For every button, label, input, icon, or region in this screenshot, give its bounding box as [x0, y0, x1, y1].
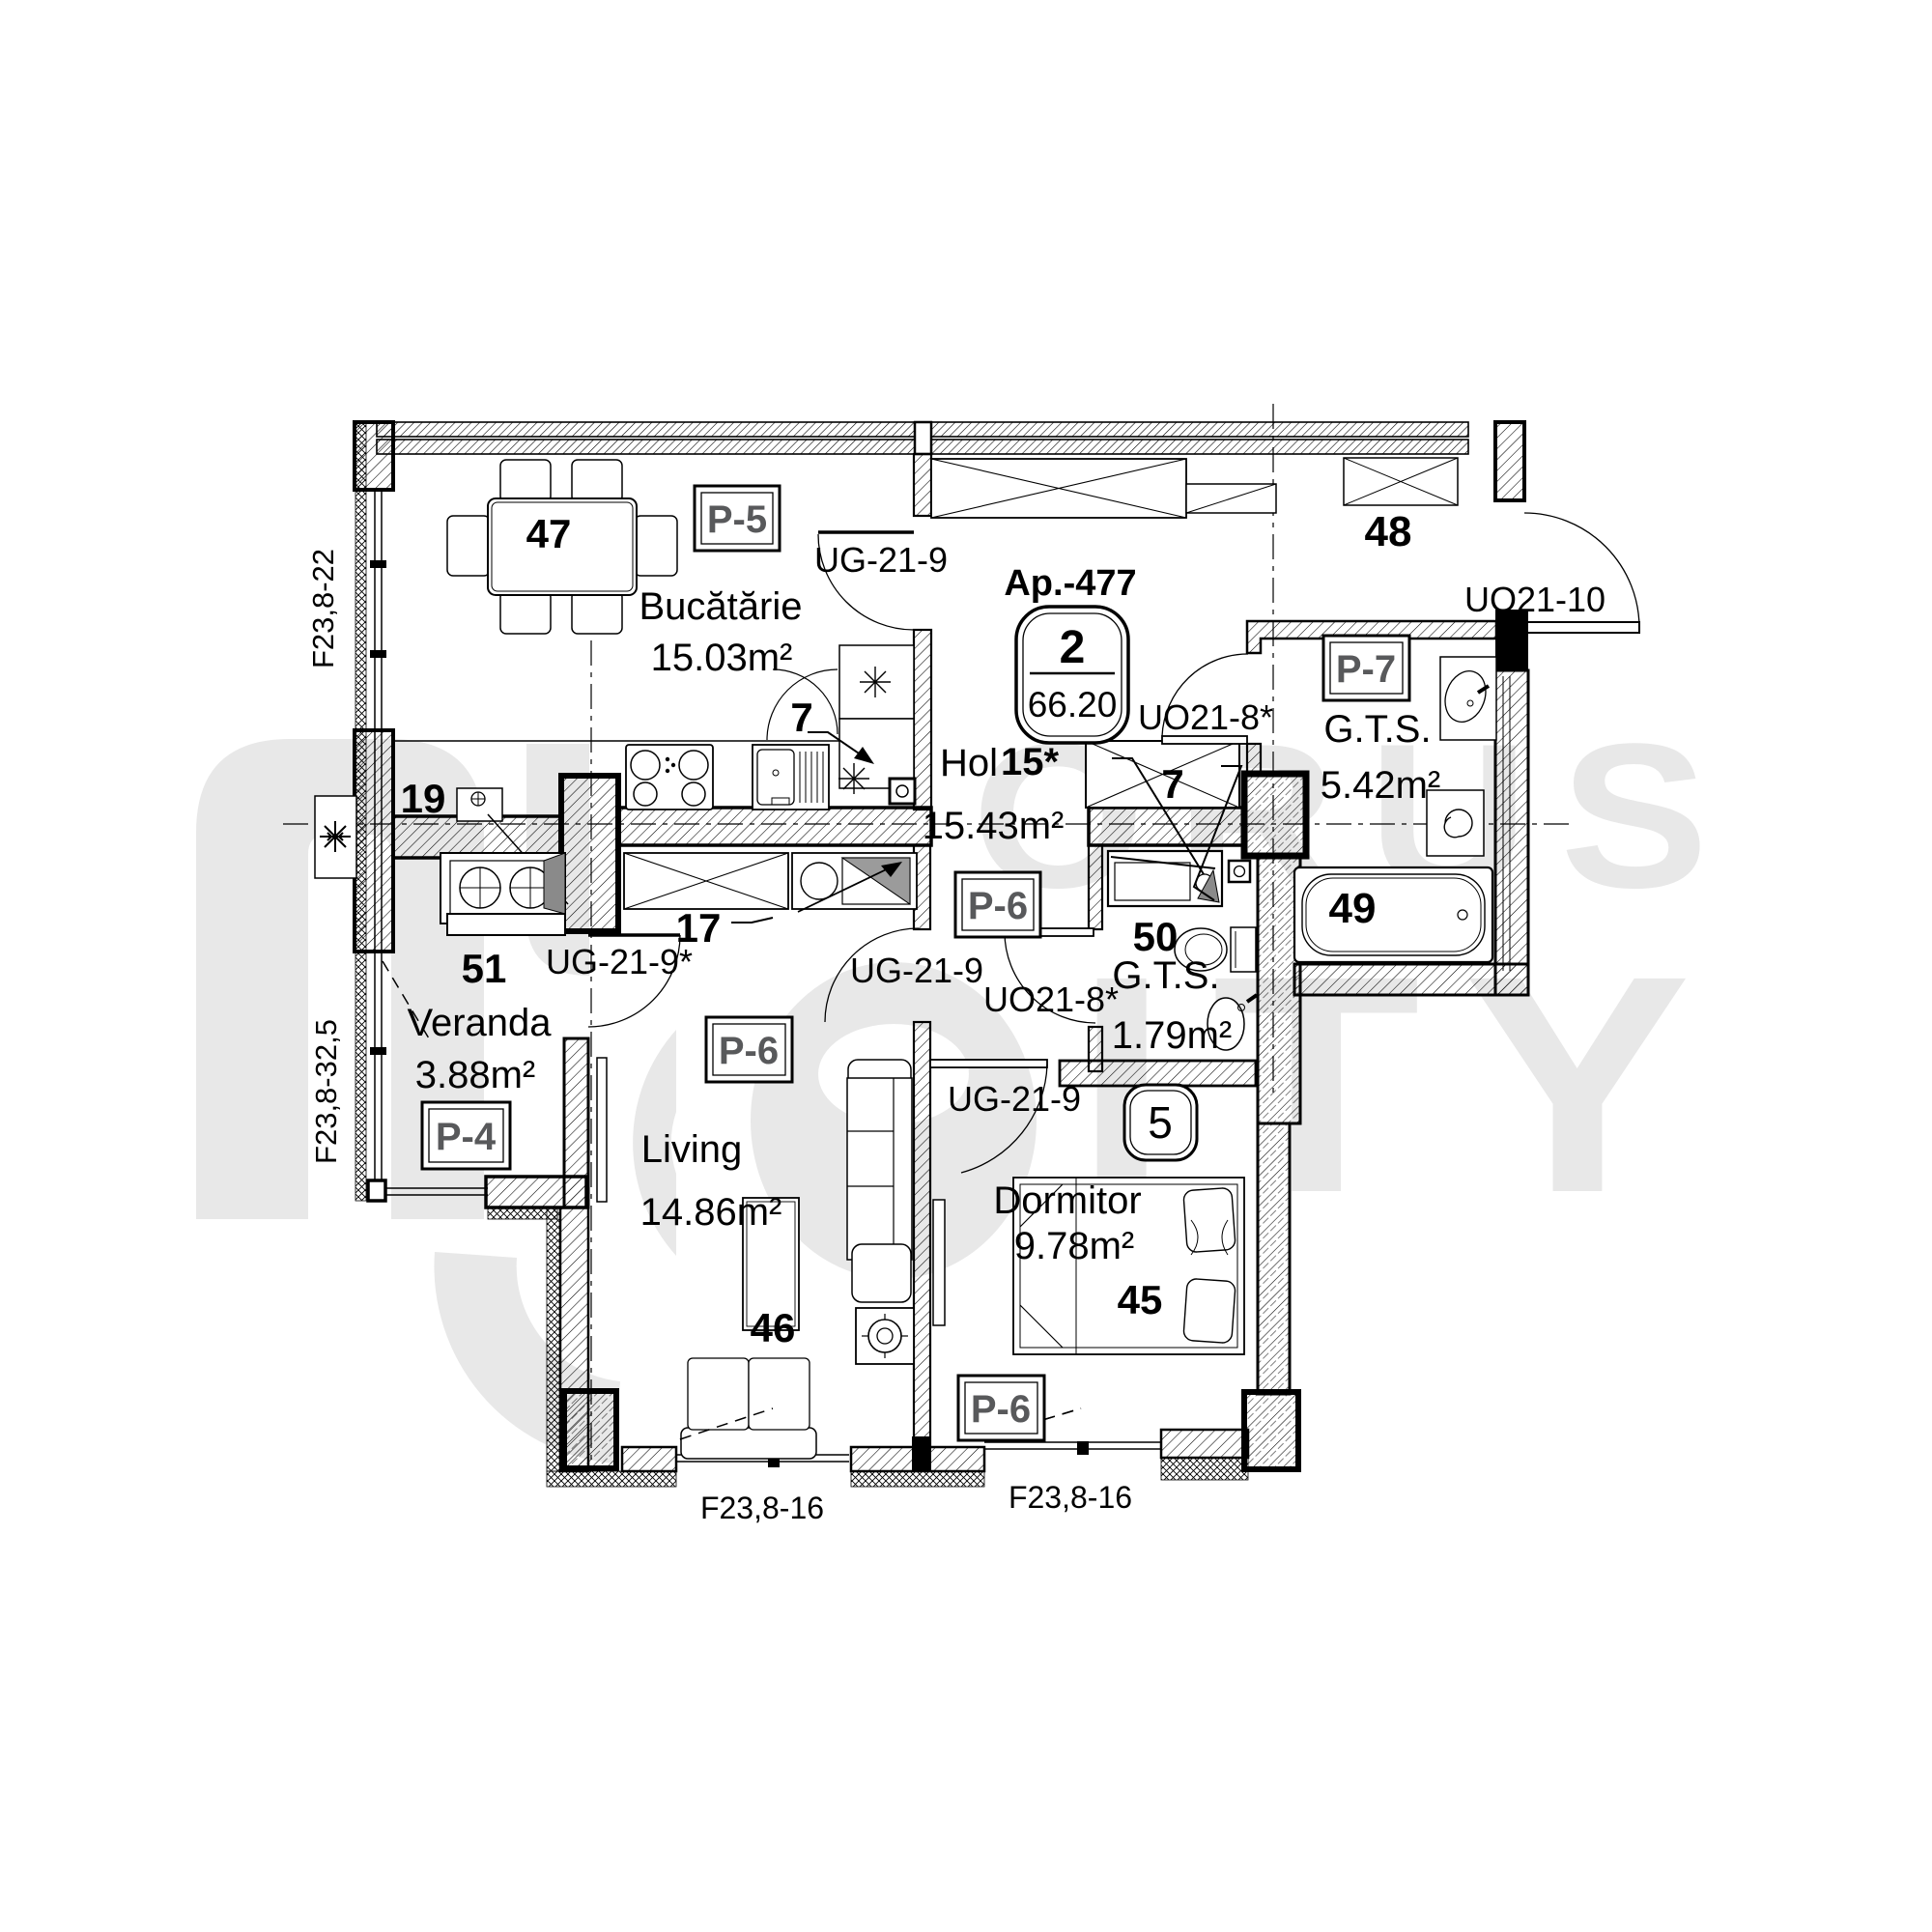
svg-text:48: 48	[1365, 508, 1412, 555]
svg-text:UO21-8*: UO21-8*	[983, 980, 1119, 1019]
svg-text:F23,8-22: F23,8-22	[306, 549, 340, 668]
svg-text:47: 47	[526, 511, 572, 556]
svg-text:P-6: P-6	[971, 1388, 1031, 1431]
svg-text:15.03m²: 15.03m²	[651, 637, 793, 679]
svg-text:F23,8-32,5: F23,8-32,5	[309, 1019, 343, 1164]
svg-text:5: 5	[1148, 1097, 1173, 1148]
svg-text:P-7: P-7	[1336, 648, 1396, 691]
svg-text:Dormitor: Dormitor	[993, 1179, 1141, 1222]
svg-text:50: 50	[1133, 914, 1179, 959]
svg-text:UG-21-9: UG-21-9	[850, 951, 983, 990]
svg-text:9.78m²: 9.78m²	[1014, 1225, 1135, 1267]
svg-text:49: 49	[1329, 885, 1377, 932]
svg-text:45: 45	[1118, 1277, 1163, 1322]
svg-text:51: 51	[462, 946, 507, 991]
svg-text:F23,8-16: F23,8-16	[1009, 1480, 1132, 1515]
svg-text:G.T.S.: G.T.S.	[1112, 954, 1219, 997]
svg-text:5.42m²: 5.42m²	[1321, 764, 1441, 807]
svg-text:1.79m²: 1.79m²	[1112, 1014, 1233, 1057]
svg-text:66.20: 66.20	[1028, 685, 1118, 724]
svg-text:Hol: Hol	[940, 742, 998, 784]
svg-text:P-6: P-6	[719, 1030, 779, 1072]
svg-text:3.88m²: 3.88m²	[415, 1054, 536, 1096]
svg-text:2: 2	[1060, 622, 1086, 673]
svg-text:14.86m²: 14.86m²	[640, 1191, 782, 1234]
svg-text:19: 19	[401, 776, 446, 821]
svg-text:Veranda: Veranda	[407, 1002, 552, 1044]
svg-text:Ap.-477: Ap.-477	[1004, 563, 1136, 604]
svg-text:P-6: P-6	[968, 885, 1028, 927]
svg-text:UG-21-9*: UG-21-9*	[546, 942, 693, 981]
svg-text:Living: Living	[641, 1128, 743, 1171]
svg-text:7: 7	[1161, 761, 1183, 807]
svg-text:UG-21-9: UG-21-9	[814, 540, 948, 580]
svg-text:7: 7	[790, 695, 812, 740]
svg-text:G.T.S.: G.T.S.	[1323, 708, 1431, 751]
svg-text:UO21-10: UO21-10	[1464, 580, 1605, 619]
svg-text:F23,8-16: F23,8-16	[700, 1491, 824, 1525]
svg-text:Bucătărie: Bucătărie	[639, 585, 803, 628]
svg-text:15.43m²: 15.43m²	[923, 805, 1065, 847]
svg-text:UG-21-9: UG-21-9	[948, 1079, 1081, 1119]
svg-text:15*: 15*	[1001, 741, 1059, 783]
svg-text:P-5: P-5	[707, 498, 767, 541]
svg-text:UO21-8*: UO21-8*	[1138, 697, 1273, 737]
svg-text:46: 46	[751, 1305, 796, 1350]
svg-text:P-4: P-4	[436, 1116, 497, 1158]
